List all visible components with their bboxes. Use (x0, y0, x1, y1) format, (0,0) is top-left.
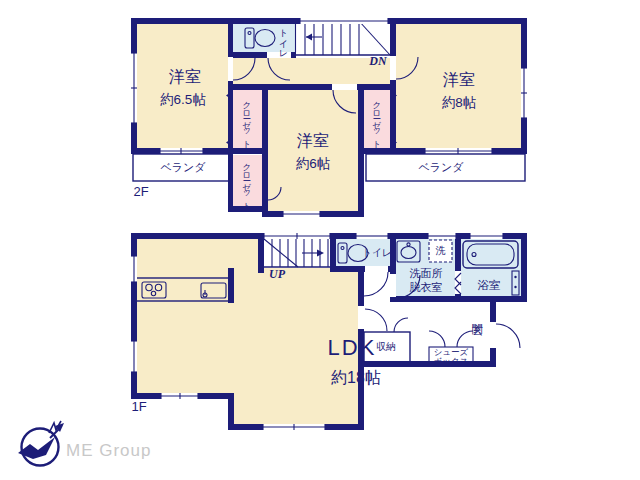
toilet2f-label: トイレ (279, 23, 288, 54)
washroom-label-1: 洗面所 (410, 268, 443, 279)
floorplan-drawing (0, 0, 640, 480)
closet-west-label: クローゼット (243, 95, 252, 144)
hall2f-floor (233, 58, 390, 84)
floorplan-canvas: 洋室 約6.5帖 洋室 約6帖 洋室 約8帖 トイレ クローゼット クローゼット… (0, 0, 640, 480)
ldk-name: LDK (328, 337, 377, 359)
room-east-name: 洋室 (443, 72, 475, 88)
room-center-name: 洋室 (297, 133, 329, 149)
shoebox-label-2: ボックス (434, 356, 469, 365)
door-arc (364, 272, 388, 296)
room-east-size: 約8帖 (442, 96, 477, 110)
veranda-east-label: ベランダ (418, 162, 463, 173)
floor1-label: 1F (131, 400, 146, 413)
stairs-down (296, 21, 391, 55)
toilet1f-label: トイレ (362, 248, 393, 258)
floor1-plan (131, 233, 527, 430)
ldk-floor (258, 268, 330, 424)
room-center-size: 約6帖 (296, 157, 331, 171)
storage-label: 収納 (376, 342, 396, 352)
shoebox-door-arc (429, 331, 445, 347)
shoebox-door-arc (457, 331, 473, 347)
bathroom-label: 浴室 (478, 280, 501, 292)
ldk-size: 約18帖 (331, 370, 381, 386)
entrance-door-arc (496, 324, 520, 348)
washroom-label-2: 脱衣室 (410, 282, 443, 293)
stairs-up-label: UP (269, 268, 285, 280)
stairs-up (264, 239, 330, 267)
compass-icon (18, 421, 64, 466)
room-west-name: 洋室 (169, 69, 201, 85)
closet-east-label: クローゼット (373, 95, 382, 144)
room-west-floor (137, 24, 228, 148)
company-logo-text: ME Group (66, 441, 151, 461)
floor2-plan (131, 18, 527, 217)
laundry-label: 洗 (436, 246, 446, 256)
veranda-west-label: ベランダ (160, 162, 205, 173)
ldk-floor (137, 239, 258, 393)
floor2-label: 2F (133, 185, 148, 198)
room-center-floor (268, 90, 358, 211)
storage-door-arc (394, 318, 408, 332)
door-arc (365, 309, 387, 331)
room-west-size: 約6.5帖 (160, 93, 206, 107)
stairs-dn-label: DN (369, 55, 386, 67)
closet-south-label: クローゼット (243, 157, 252, 206)
